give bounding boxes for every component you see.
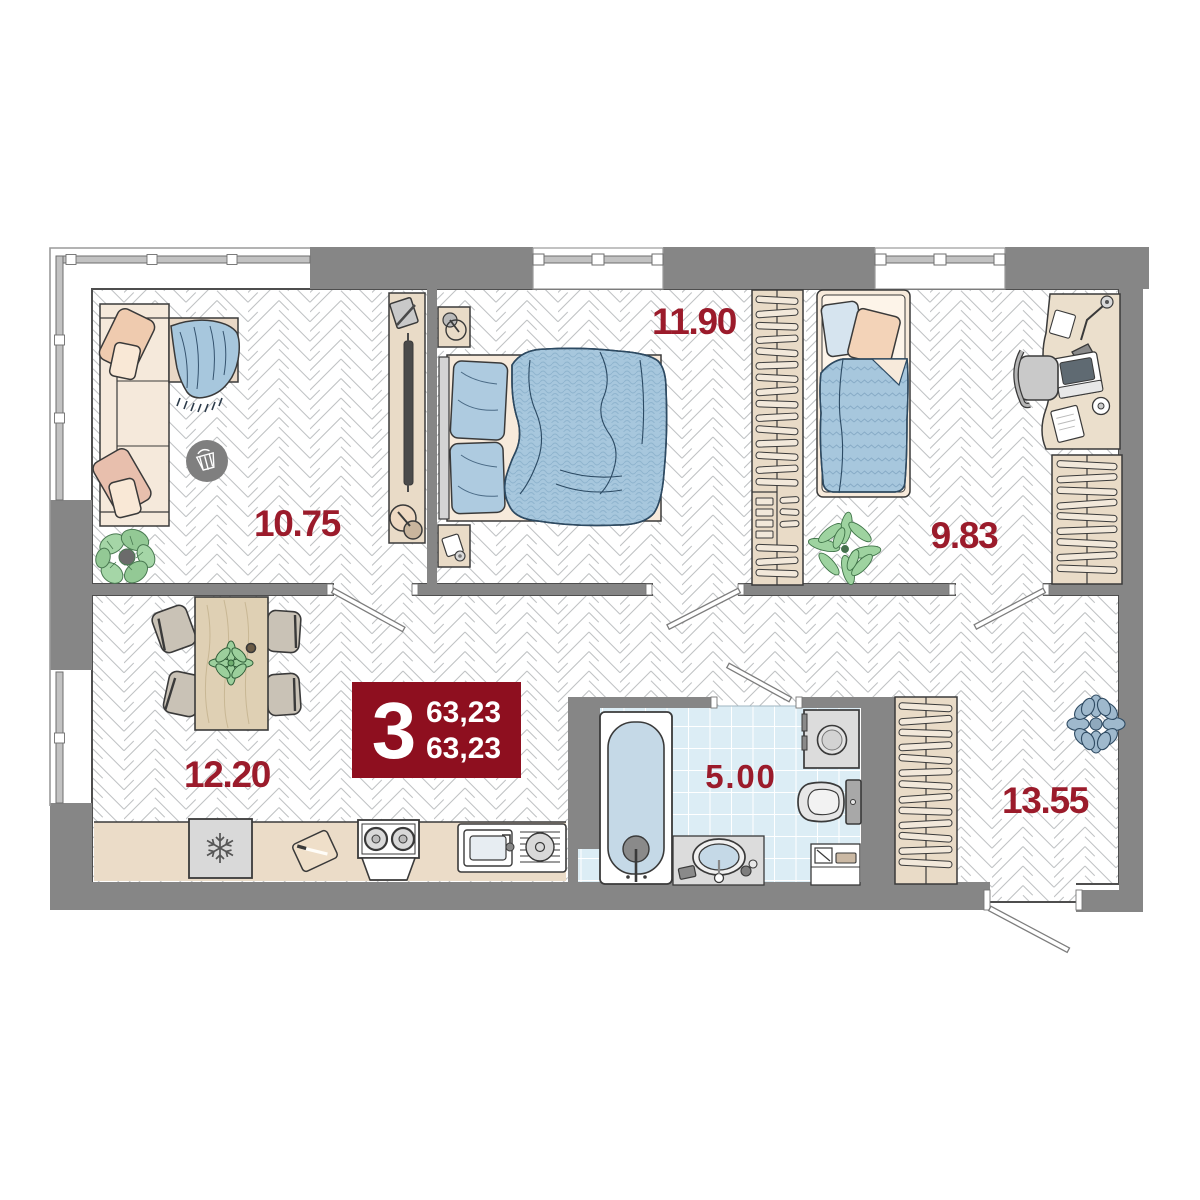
svg-text:11.90: 11.90 <box>652 301 737 342</box>
svg-text:3: 3 <box>372 686 417 775</box>
svg-text:9.83: 9.83 <box>931 515 999 556</box>
svg-text:5.00: 5.00 <box>705 758 776 795</box>
svg-text:63,23: 63,23 <box>426 696 501 729</box>
svg-text:13.55: 13.55 <box>1002 780 1089 821</box>
svg-text:12.20: 12.20 <box>184 754 271 795</box>
svg-text:10.75: 10.75 <box>254 503 341 544</box>
svg-text:63,23: 63,23 <box>426 732 501 765</box>
